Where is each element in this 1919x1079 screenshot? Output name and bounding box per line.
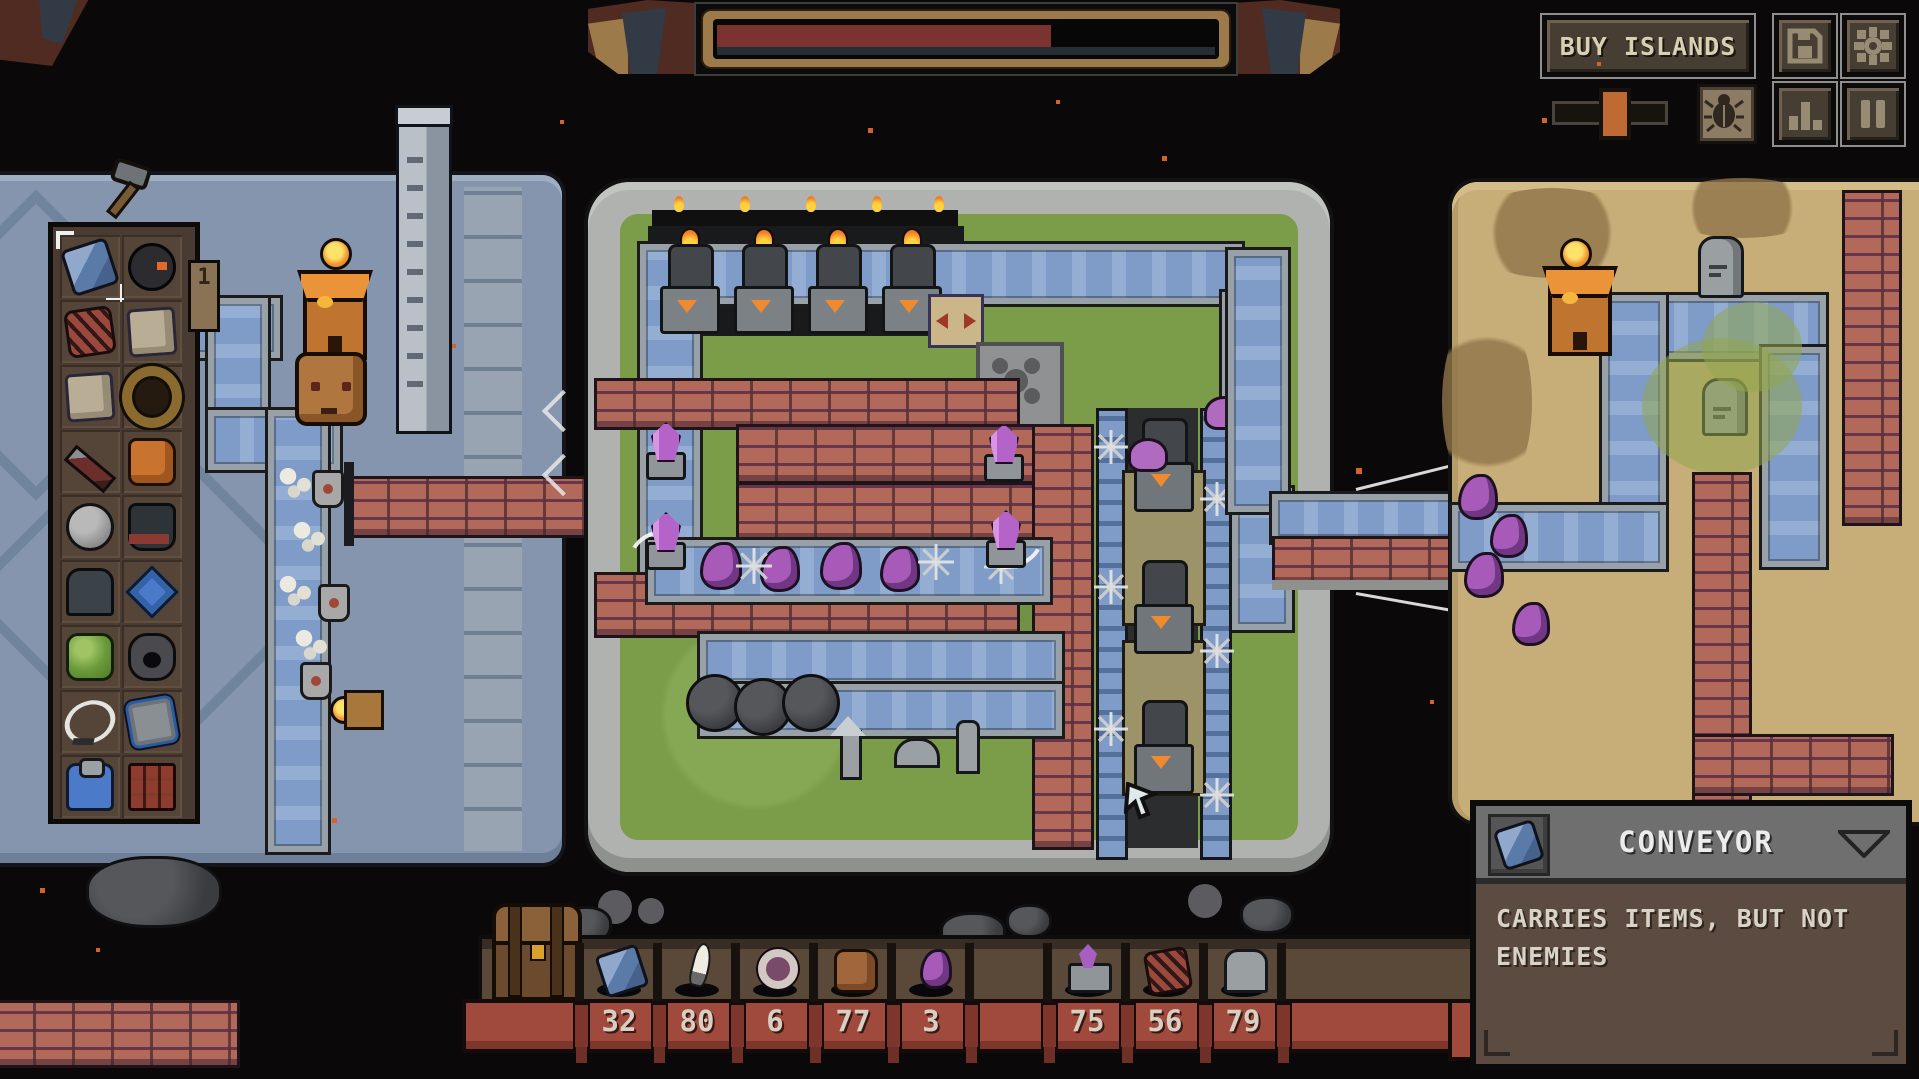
build-item-boulder[interactable]: [60, 495, 120, 558]
cannon-tower: [1134, 700, 1190, 792]
resource-count: 77: [814, 1004, 892, 1038]
resource-count: 75: [1048, 1004, 1126, 1038]
resource-slot-empty: [970, 935, 1048, 1045]
resource-slot: 80: [658, 935, 736, 1045]
wood-ring-icon: [122, 366, 182, 428]
skeleton-remains: [276, 466, 316, 500]
build-item-orange-claw[interactable]: [122, 430, 182, 493]
tooltip-panel: CONVEYOR CARRIES ITEMS, BUT NOT ENEMIES: [1470, 800, 1912, 1070]
bridge-lip: [1272, 580, 1464, 590]
brick-wall-vertical: [1842, 190, 1902, 526]
furnace-tower: [808, 238, 868, 332]
buy-islands-label: BUY ISLANDS: [1542, 15, 1754, 77]
gas-cloud: [1702, 302, 1802, 392]
progress-shade: [717, 47, 1215, 55]
tower-orb: [1560, 238, 1592, 270]
arrow-pedestal[interactable]: [840, 730, 862, 780]
critter-icon: [834, 949, 878, 993]
ox-eye: [311, 382, 320, 391]
treasure-chest[interactable]: [492, 903, 580, 1001]
build-item-dark-tombstone[interactable]: [60, 560, 120, 623]
resource-count: 56: [1126, 1004, 1204, 1038]
desert-island-right: [1452, 182, 1919, 822]
boulder-icon: [66, 503, 114, 551]
furnace-tower: [734, 238, 794, 332]
skeleton-remains: [290, 520, 330, 554]
pause-icon: [1853, 94, 1893, 134]
spider-web: [1094, 430, 1128, 464]
tombstone: [1698, 236, 1744, 298]
roof-decoration: [0, 0, 96, 66]
tentacle-enemy: [1458, 474, 1498, 520]
stone-block-icon: [64, 371, 115, 422]
ember-particle: [1542, 118, 1547, 123]
stone-block-icon: [126, 306, 177, 357]
resource-count: 80: [658, 1004, 736, 1038]
tower-orb: [320, 238, 352, 270]
shield-enemy: [300, 662, 332, 700]
resource-count: 32: [580, 1004, 658, 1038]
tombstone-icon: [1224, 949, 1268, 993]
brick-bridge: [1272, 536, 1470, 586]
spider-web: [736, 548, 772, 584]
banner-cap-right: [1232, 0, 1340, 74]
flame: [872, 196, 882, 212]
arrow-pedestal-tip: [830, 716, 866, 736]
settings-gear-icon: [1852, 25, 1894, 67]
enemy-path: [1228, 250, 1288, 512]
purple-crystal-turret: [982, 424, 1022, 482]
cauldron-icon: [128, 503, 176, 551]
build-item-framed-tile[interactable]: [122, 690, 182, 753]
shield-enemy: [318, 584, 350, 622]
stats-bars-icon: [1785, 94, 1825, 134]
tentacle-enemy: [1464, 552, 1504, 598]
copper-coil-icon: [1143, 946, 1194, 997]
build-item-slime-pad[interactable]: [60, 625, 120, 688]
obelisk-pedestal[interactable]: [956, 720, 980, 774]
progress-fill: [717, 25, 1051, 47]
ember-particle: [1162, 156, 1167, 161]
rust-crate-icon: [128, 763, 176, 811]
sand-mottle: [1462, 188, 1642, 278]
bridge-rope: [1356, 592, 1455, 612]
wave-progress-bar: [694, 2, 1238, 76]
purple-crystal-turret: [644, 422, 684, 480]
resource-slot: 3: [892, 935, 970, 1045]
island-underside-rock: [86, 856, 222, 928]
resource-count: 6: [736, 1004, 814, 1038]
pillar-cap: [395, 105, 453, 127]
ember-particle: [332, 818, 337, 823]
tentacle-enemy: [880, 546, 920, 592]
build-item-blue-fountain[interactable]: [60, 755, 120, 818]
resource-slot: 32: [580, 935, 658, 1045]
build-panel: [48, 222, 200, 824]
speed-slider[interactable]: [1552, 101, 1668, 125]
watchtower-glow: [317, 296, 333, 308]
watchtower: [1548, 278, 1612, 356]
build-item-conveyor[interactable]: [60, 235, 120, 298]
flame: [674, 196, 684, 212]
spider-web: [1200, 778, 1234, 812]
spider-web: [1094, 570, 1128, 604]
spider-web: [1200, 634, 1234, 668]
ember-particle: [1056, 100, 1060, 104]
blue-rune-icon: [125, 565, 179, 619]
burrow-rock-icon: [128, 633, 176, 681]
flame: [806, 196, 816, 212]
orange-claw-icon: [128, 438, 176, 486]
game-viewport: BUY ISLANDS: [0, 0, 1919, 1079]
slider-handle[interactable]: [1599, 88, 1631, 140]
watchtower: [303, 282, 367, 360]
tooltip-icon-frame: [1488, 814, 1550, 876]
buy-islands-button[interactable]: BUY ISLANDS: [1540, 13, 1756, 79]
ring-icon: [758, 949, 798, 989]
watchtower-roof: [297, 270, 373, 302]
resource-slot: 56: [1126, 935, 1204, 1045]
sand-mottle: [1662, 178, 1822, 238]
spider-web: [918, 544, 954, 580]
save-button[interactable]: [1772, 13, 1838, 79]
beetle-button[interactable]: [1697, 84, 1757, 144]
ember-particle: [1356, 468, 1362, 474]
build-item-bomb[interactable]: [122, 235, 182, 298]
grass-island-center: [588, 182, 1330, 872]
debris-rock: [1006, 904, 1052, 938]
build-item-spiked-cauldron[interactable]: [122, 495, 182, 558]
lasso-icon: [58, 692, 122, 751]
settings-button[interactable]: [1840, 13, 1906, 79]
blue-fountain-icon: [66, 763, 114, 811]
resource-count: 3: [892, 1004, 970, 1038]
ember-particle: [868, 128, 873, 133]
build-item-spear[interactable]: [60, 430, 120, 493]
build-item-lasso[interactable]: [60, 690, 120, 753]
crate: [344, 690, 384, 730]
smoke-puff: [638, 898, 664, 924]
resource-slot: 75: [1048, 935, 1126, 1045]
save-floppy-icon: [1785, 26, 1825, 66]
build-item-copper-coil[interactable]: [60, 300, 120, 363]
ox-nose: [321, 408, 337, 414]
rune-pillar: [396, 116, 452, 434]
tentacle-enemy: [1490, 514, 1528, 558]
furnace-tower: [660, 238, 720, 332]
framed-tile-icon: [124, 694, 180, 750]
ember-particle: [1597, 62, 1601, 66]
build-item-blue-rune-charm[interactable]: [122, 560, 182, 623]
brick-wall: [1692, 734, 1894, 796]
skeleton-remains: [276, 574, 316, 608]
build-hammer-icon: [88, 158, 160, 230]
ox-statue: [295, 352, 367, 426]
tentacle-enemy: [1512, 602, 1550, 646]
purple-crystal-turret: [644, 512, 684, 570]
bomb-icon: [128, 243, 176, 291]
panel-tab-number: 1: [197, 265, 210, 290]
resource-slot: 77: [814, 935, 892, 1045]
resource-slot: 6: [736, 935, 814, 1045]
copper-coil-icon: [63, 304, 117, 358]
resource-slot-spacer: [1282, 935, 1360, 1045]
crystal-tower-icon: [1068, 963, 1112, 993]
snail-enemy: [1128, 438, 1168, 472]
resource-count: 79: [1204, 1004, 1282, 1038]
dark-tombstone-icon: [66, 568, 114, 616]
build-item-stone-block-2[interactable]: [60, 365, 120, 428]
skeleton-remains: [292, 628, 332, 662]
ox-eye: [342, 382, 351, 391]
ember-particle: [560, 120, 564, 124]
resource-slot: 79: [1204, 935, 1282, 1045]
rune-carvings: [407, 147, 423, 387]
conveyor-icon: [1493, 819, 1546, 872]
direction-sign: [928, 294, 984, 348]
cannon-tower: [1134, 560, 1190, 652]
progress-well: [713, 19, 1219, 59]
build-item-burrow-rock[interactable]: [122, 625, 182, 688]
ember-particle: [1430, 700, 1434, 704]
pause-button[interactable]: [1840, 81, 1906, 147]
tooltip-corner: [1872, 1030, 1898, 1056]
stats-button[interactable]: [1772, 81, 1838, 147]
ember-particle: [452, 344, 456, 348]
brick-wall: [0, 1000, 240, 1068]
bridge-rope: [1356, 464, 1454, 491]
flame: [934, 196, 944, 212]
sand-mottle: [1442, 302, 1532, 502]
shield-enemy: [312, 470, 344, 508]
blade-icon: [687, 941, 715, 988]
mouse-cursor: [1124, 782, 1164, 826]
tooltip-title: CONVEYOR: [1556, 806, 1836, 878]
beetle-icon: [1702, 89, 1746, 133]
flame: [740, 196, 750, 212]
tentacle-icon: [920, 949, 952, 989]
tentacle-enemy: [820, 542, 862, 590]
ember-particle: [40, 888, 45, 893]
build-item-stone-block[interactable]: [122, 300, 182, 363]
bridge-path: [1272, 494, 1476, 542]
tooltip-corner: [1484, 1030, 1510, 1056]
ember-particle: [96, 948, 100, 952]
banner-cap-left: [588, 0, 696, 74]
debris-rock: [1240, 896, 1294, 934]
slime-pad-icon: [66, 633, 114, 681]
smoke-puff: [1188, 884, 1222, 918]
chevron-down-icon[interactable]: [1838, 830, 1890, 858]
tooltip-body: CARRIES ITEMS, BUT NOT ENEMIES: [1476, 884, 1906, 1064]
build-item-rust-crate[interactable]: [122, 755, 182, 818]
spider-web: [1094, 712, 1128, 746]
bridge-post: [344, 462, 354, 546]
panel-tab-badge: 1: [188, 260, 220, 332]
spear-icon: [64, 444, 117, 493]
build-item-wood-ring[interactable]: [122, 365, 182, 428]
dome-pedestal[interactable]: [894, 738, 940, 768]
purple-crystal-turret: [984, 510, 1024, 568]
